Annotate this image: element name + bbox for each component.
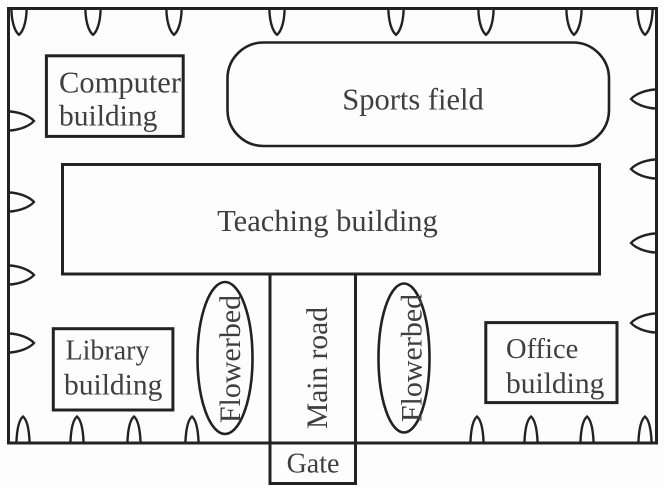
svg-text:Flowerbed: Flowerbed bbox=[214, 295, 247, 423]
svg-text:Computer: Computer bbox=[59, 66, 181, 100]
svg-text:building: building bbox=[506, 368, 605, 400]
svg-text:Gate: Gate bbox=[287, 449, 340, 480]
svg-text:Flowerbed: Flowerbed bbox=[396, 294, 429, 422]
svg-text:Library: Library bbox=[66, 336, 150, 367]
svg-text:building: building bbox=[64, 370, 163, 402]
svg-text:building: building bbox=[59, 101, 158, 133]
svg-text:Teaching building: Teaching building bbox=[217, 204, 438, 238]
svg-text:Sports field: Sports field bbox=[342, 83, 483, 117]
svg-text:Main road: Main road bbox=[302, 307, 334, 429]
svg-text:Office: Office bbox=[506, 334, 578, 365]
